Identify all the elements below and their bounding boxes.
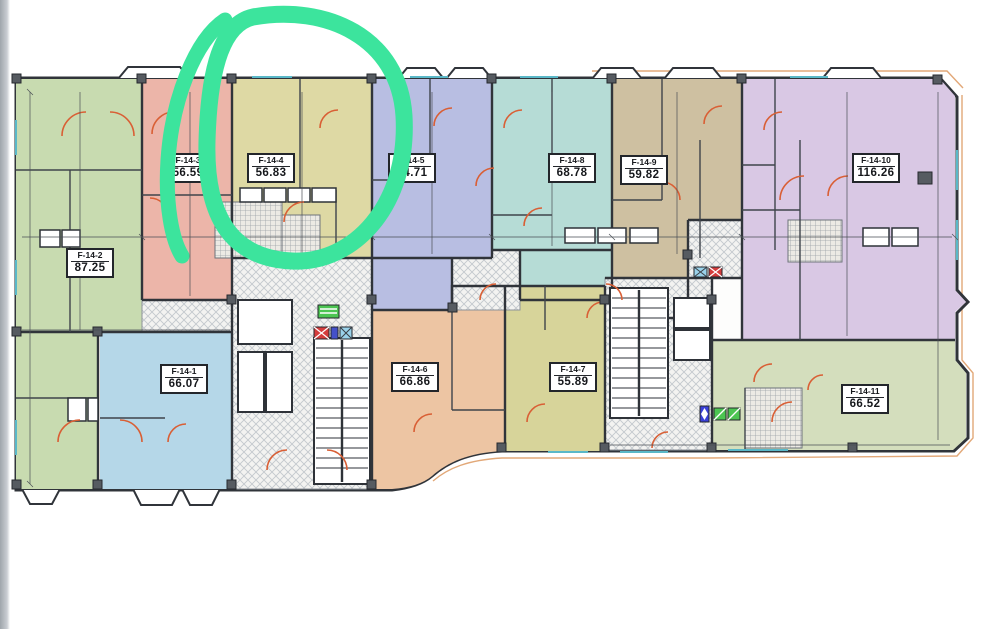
unit-label-f-14-4: F-14-4 56.83 [247,153,295,183]
elevator-core-1 [238,300,292,412]
unit-label-f-14-1: F-14-1 66.07 [160,364,208,394]
elevator-core-2 [674,298,710,360]
unit-region-f-14-1 [100,332,232,489]
unit-label-f-14-2: F-14-2 87.25 [66,248,114,278]
staircase-core-1 [314,338,370,484]
unit-label-f-14-10: F-14-10 116.26 [852,153,900,183]
staircase-core-2 [610,288,668,418]
unit-label-f-14-7: F-14-7 55.89 [549,362,597,392]
unit-label-f-14-5: F-14-5 54.71 [388,153,436,183]
unit-label-f-14-9: F-14-9 59.82 [620,155,668,185]
unit-label-f-14-6: F-14-6 66.86 [391,362,439,392]
floor-plan-drawing [0,0,1000,629]
unit-label-f-14-11: F-14-11 66.52 [841,384,889,414]
unit-label-f-14-3: F-14-3 56.59 [164,153,212,183]
floor-plan-photo: F-14-1 66.07 F-14-2 87.25 F-14-3 56.59 F… [0,0,1000,629]
unit-region-f-14-3 [142,79,232,300]
unit-label-f-14-8: F-14-8 68.78 [548,153,596,183]
unit-region-f-14-2 [16,79,142,332]
